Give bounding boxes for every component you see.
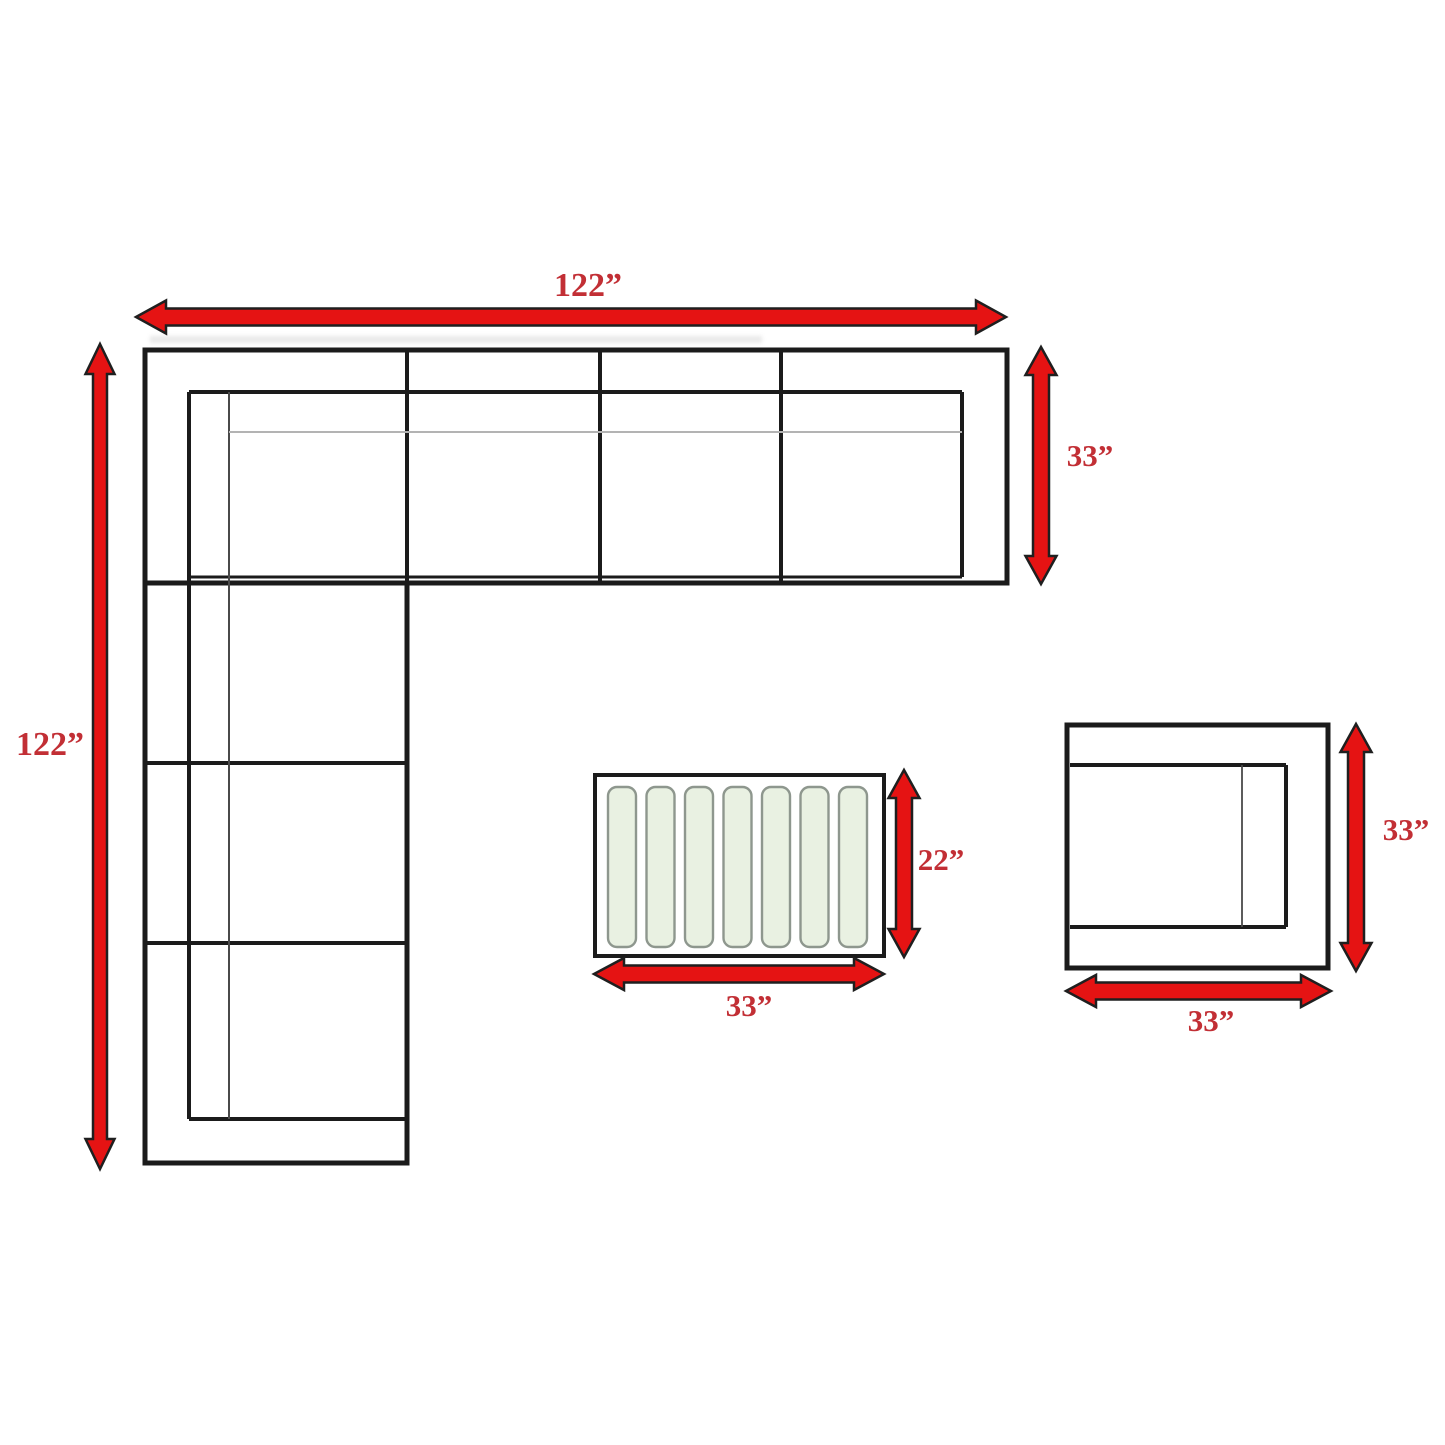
table-slat-7 (839, 787, 867, 947)
label-chair-width: 33” (1188, 1003, 1235, 1038)
label-sofa-height: 122” (16, 726, 84, 763)
table-slat-4 (724, 787, 752, 947)
accent-chair (1067, 725, 1328, 968)
table-slat-1 (608, 787, 636, 947)
table-slat-2 (647, 787, 675, 947)
table-slat-3 (685, 787, 713, 947)
chair-outline (1067, 725, 1328, 968)
label-table-depth: 22” (918, 842, 965, 877)
label-sofa-width: 122” (554, 267, 622, 304)
label-table-width: 33” (726, 988, 773, 1023)
label-chair-depth: 33” (1383, 812, 1430, 847)
coffee-table (595, 775, 884, 956)
table-slat-6 (801, 787, 829, 947)
floorplan-diagram: 122”122”33”22”33”33”33” (0, 0, 1445, 1445)
label-sofa-depth: 33” (1067, 438, 1114, 473)
table-slat-5 (762, 787, 790, 947)
faint-watermark-smudge (150, 336, 762, 343)
diagram-stage: 122”122”33”22”33”33”33” (0, 0, 1445, 1445)
